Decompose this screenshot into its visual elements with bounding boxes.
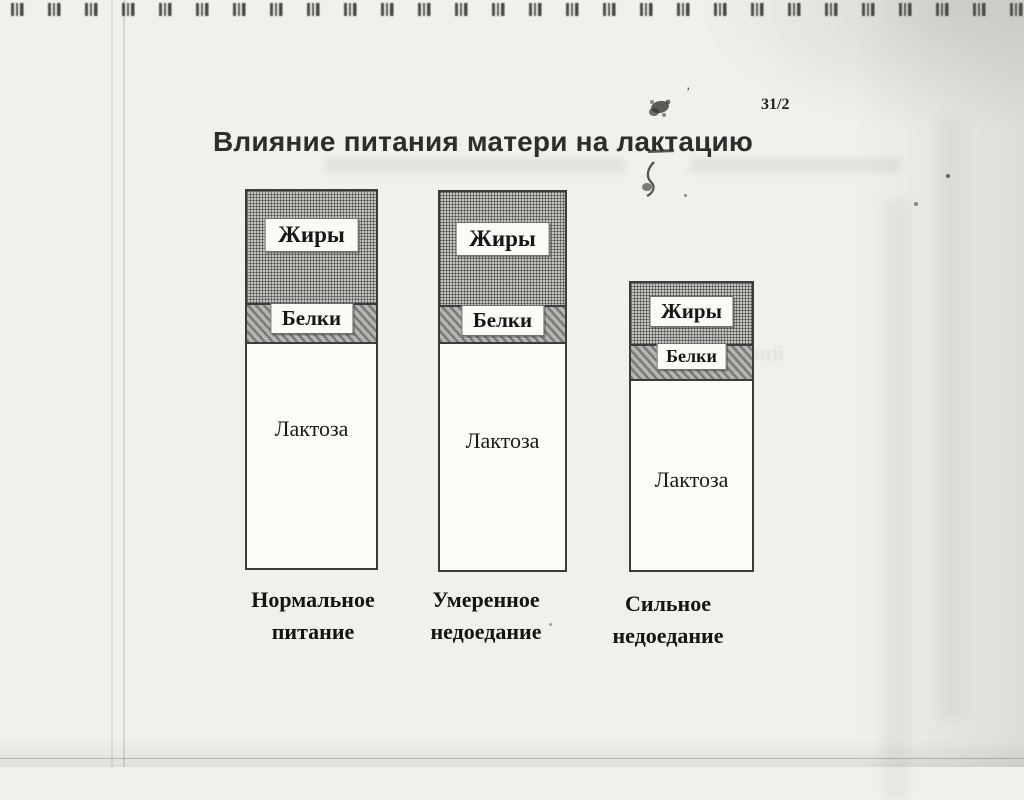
column-caption-severe-malnutrition: Сильное недоедание <box>583 588 753 652</box>
ink-speck <box>914 202 918 206</box>
lactose-label: Лактоза <box>631 467 752 493</box>
caption-line: Умеренное <box>401 584 571 616</box>
scan-streak <box>938 120 964 720</box>
ink-speck <box>946 174 950 178</box>
column-caption-normal-nutrition: Нормальное питание <box>228 584 398 648</box>
paper-fold-line <box>123 0 125 767</box>
fats-label: Жиры <box>455 222 550 256</box>
caption-line: питание <box>228 616 398 648</box>
column-caption-moderate-malnutrition: Умеренное недоедание <box>401 584 571 648</box>
column-moderate-malnutrition: Жиры Белки Лактоза <box>438 190 567 572</box>
slide-number: 31/2 <box>761 96 789 114</box>
paper-fold-line <box>111 0 113 767</box>
scan-streak <box>883 200 909 800</box>
proteins-label: Белки <box>270 303 353 334</box>
ink-speck: ʼ <box>686 84 690 100</box>
proteins-label: Белки <box>461 305 544 336</box>
fats-label: Жиры <box>264 218 359 252</box>
caption-line: Сильное <box>583 588 753 620</box>
column-normal-nutrition: Жиры Белки Лактоза <box>245 189 378 570</box>
column-severe-malnutrition: Жиры Белки Лактоза <box>629 281 754 572</box>
bleed-through-blur <box>690 158 900 173</box>
caption-line: недоедание <box>401 616 571 648</box>
fats-label: Жиры <box>649 296 734 327</box>
proteins-label: Белки <box>656 343 727 370</box>
caption-line: Нормальное <box>228 584 398 616</box>
paper-shading-bottom <box>0 739 1024 767</box>
bleed-through-blur <box>325 158 625 173</box>
paper-bottom-edge <box>0 758 1024 759</box>
caption-line: недоедание <box>583 620 753 652</box>
lactose-label: Лактоза <box>247 416 376 442</box>
lactose-label: Лактоза <box>440 428 565 454</box>
scanned-slide: фасоли банана масла калорий 31/2 Влияние… <box>0 0 1024 767</box>
ink-smudge <box>630 84 690 204</box>
